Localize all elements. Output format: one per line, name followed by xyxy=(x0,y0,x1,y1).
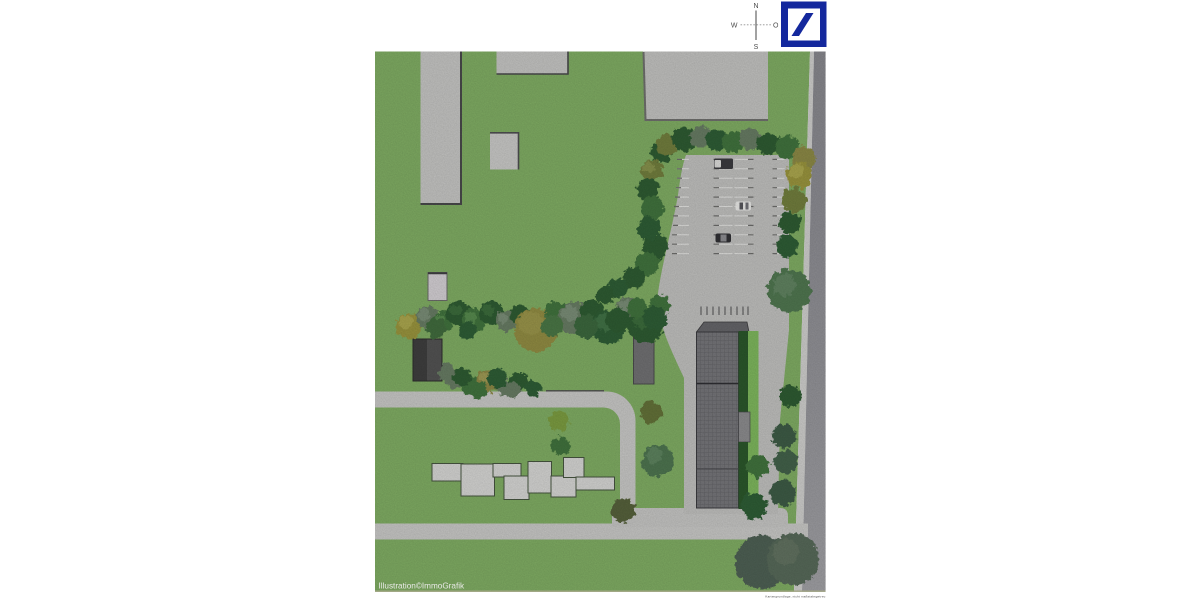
svg-text:Kartengrundlage, nicht maßstab: Kartengrundlage, nicht maßstabsgetreu xyxy=(765,595,825,599)
svg-text:O: O xyxy=(773,23,779,30)
svg-text:N: N xyxy=(753,3,758,10)
svg-text:S: S xyxy=(754,44,759,51)
svg-text:W: W xyxy=(731,23,738,30)
svg-text:Illustration©ImmoGrafik: Illustration©ImmoGrafik xyxy=(379,582,466,591)
